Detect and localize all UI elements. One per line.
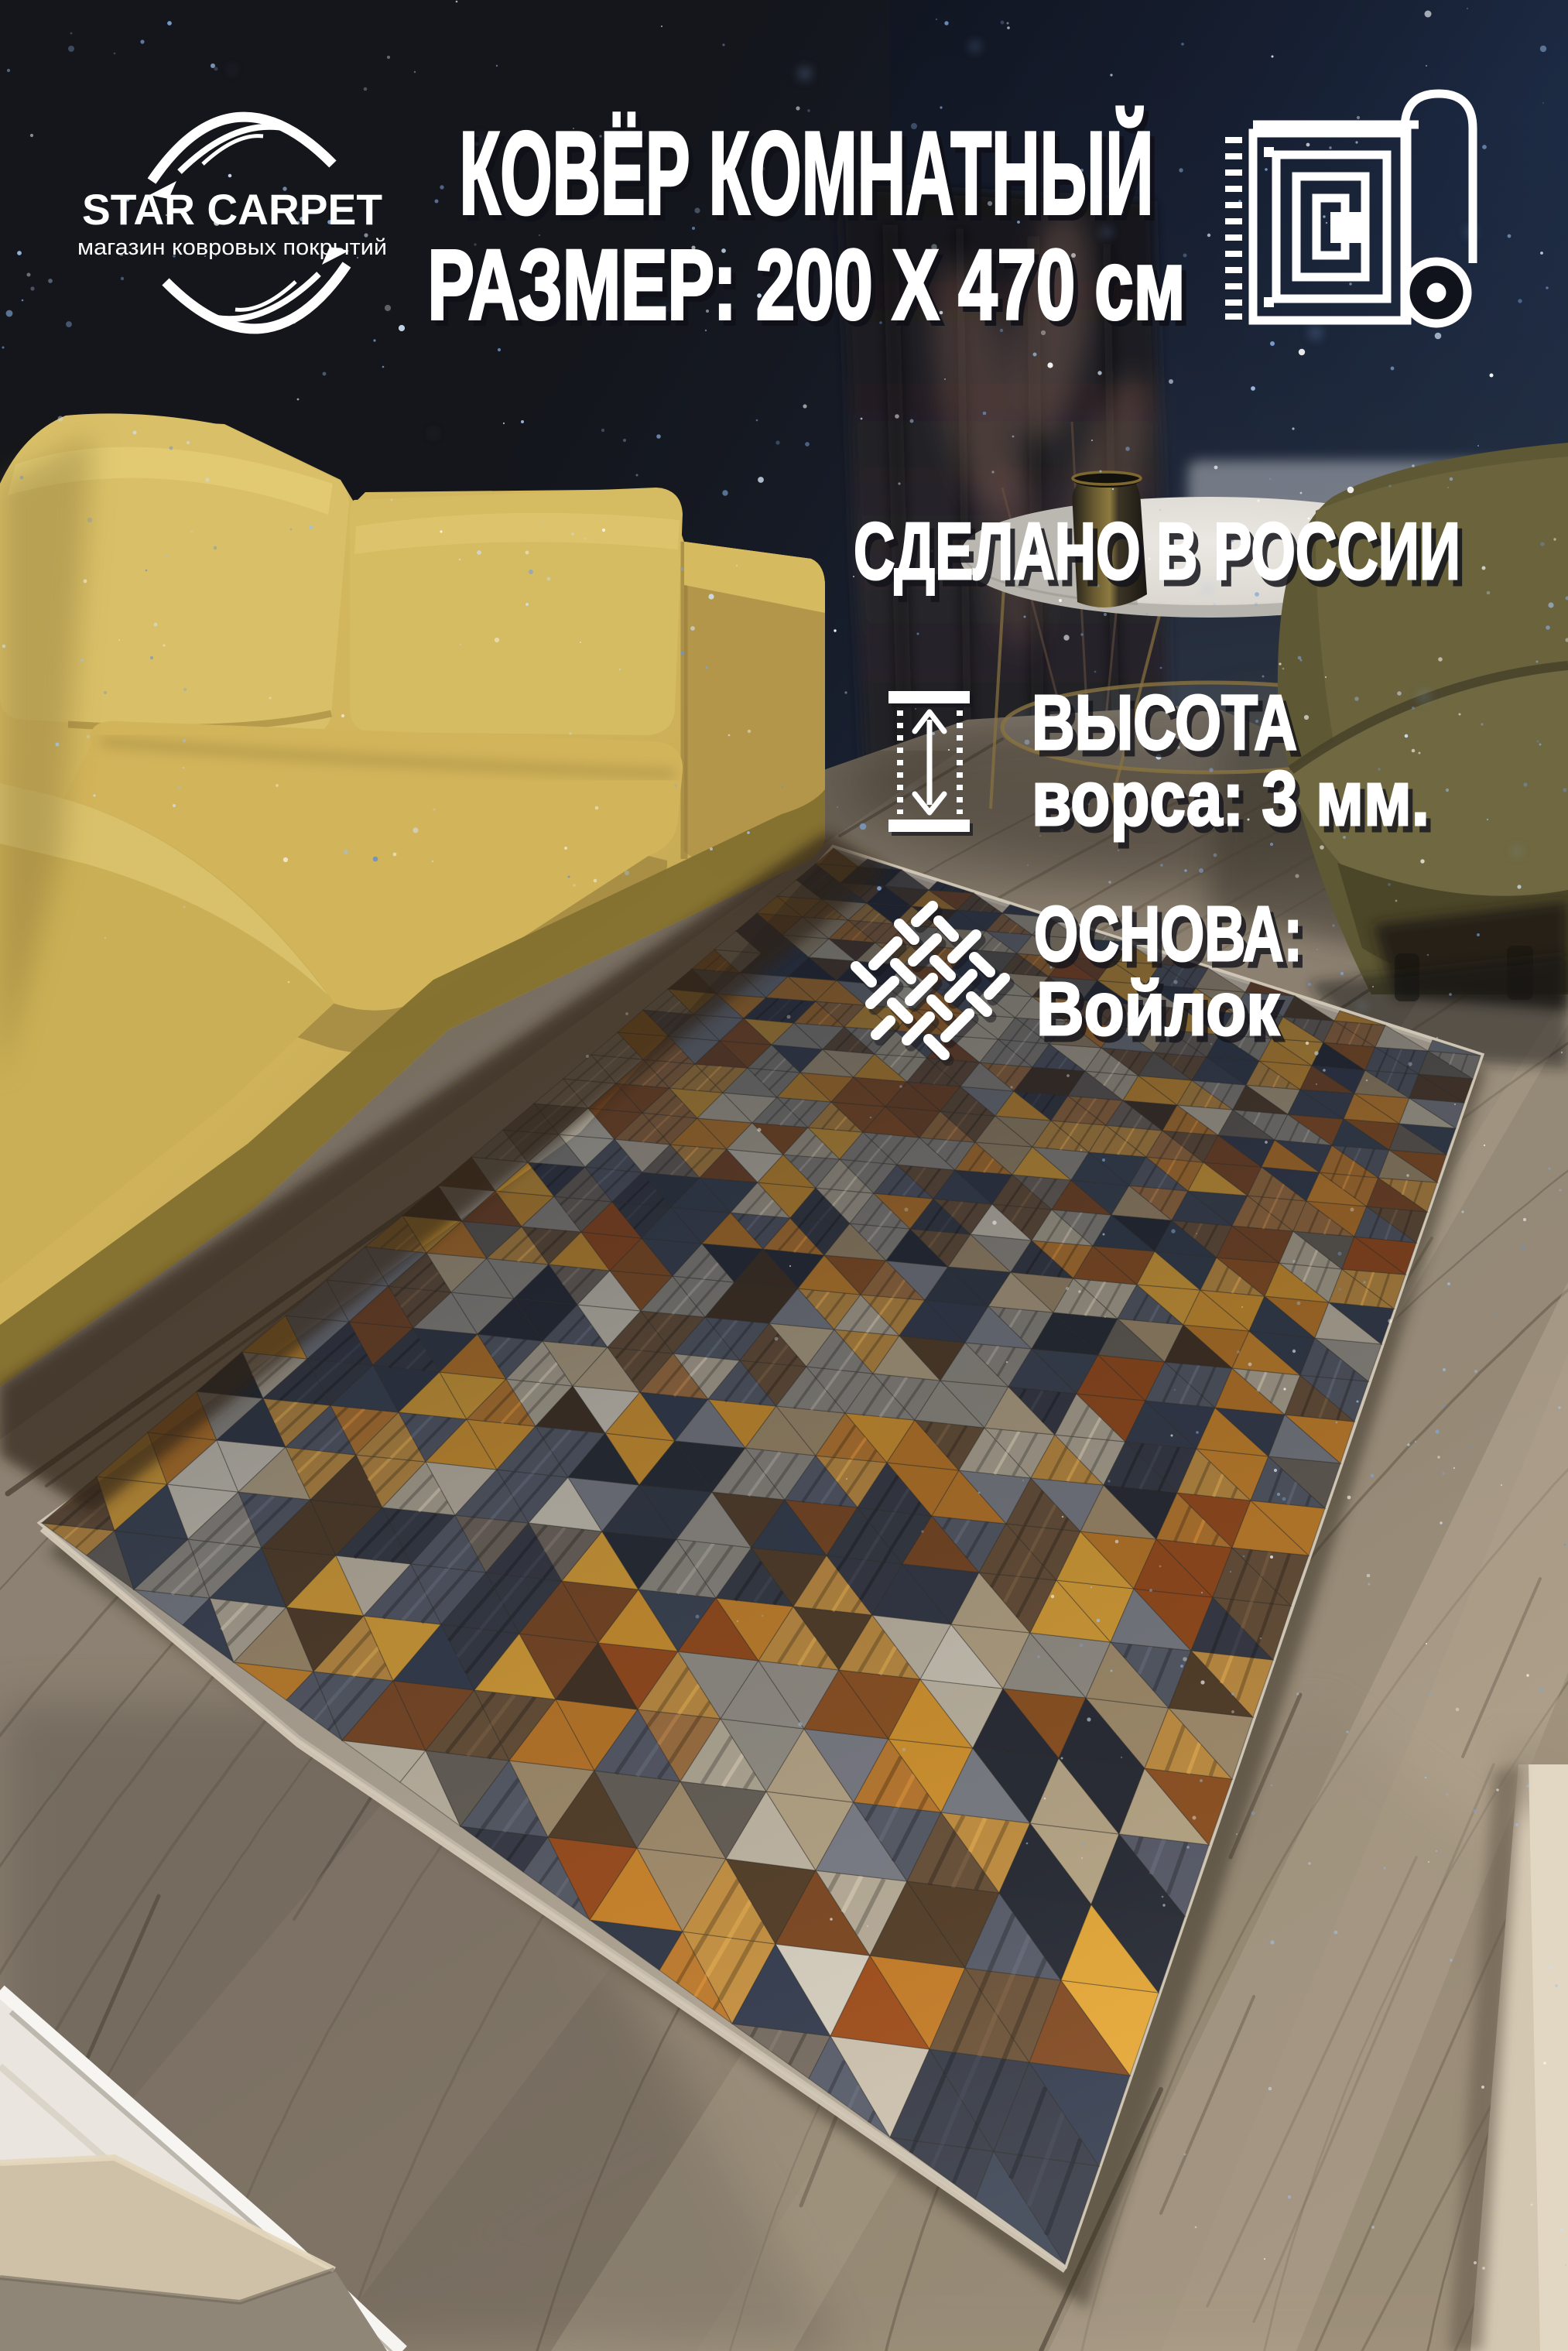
svg-text:ОСНОВА:: ОСНОВА: xyxy=(1034,891,1303,977)
svg-text:ворса: 3 мм.: ворса: 3 мм. xyxy=(1032,755,1429,842)
svg-text:РАЗМЕР: 200 X 470 см: РАЗМЕР: 200 X 470 см xyxy=(428,230,1186,341)
svg-text:магазин ковровых покрытий: магазин ковровых покрытий xyxy=(77,235,387,260)
svg-text:ВЫСОТА: ВЫСОТА xyxy=(1032,679,1297,766)
svg-text:СДЕЛАНО В РОССИИ: СДЕЛАНО В РОССИИ xyxy=(854,507,1460,597)
svg-text:Войлок: Войлок xyxy=(1036,967,1279,1051)
svg-text:STAR CARPET: STAR CARPET xyxy=(82,185,382,234)
svg-text:КОВЁР КОМНАТНЫЙ: КОВЁР КОМНАТНЫЙ xyxy=(460,107,1154,239)
